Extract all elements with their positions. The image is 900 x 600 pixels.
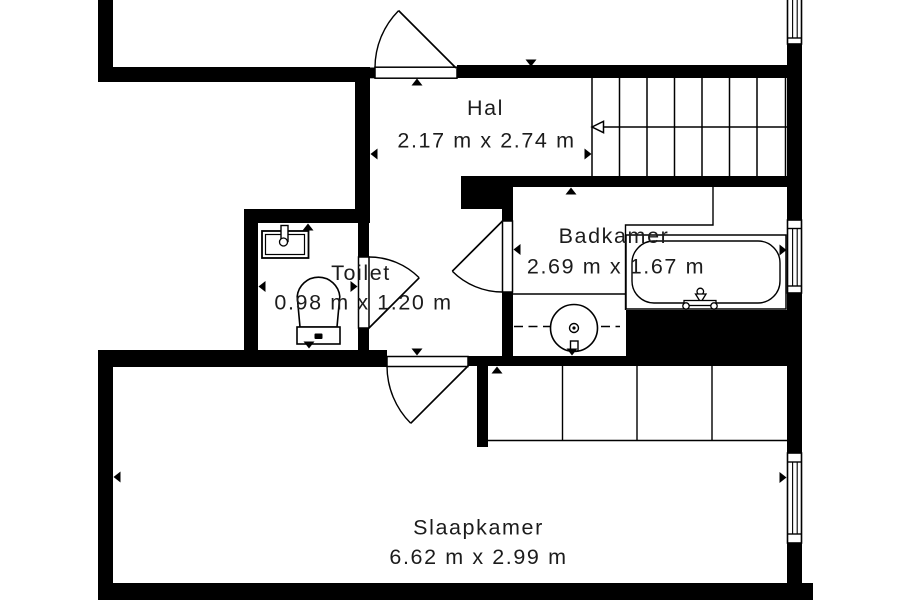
svg-text:2.69 m x 1.67 m: 2.69 m x 1.67 m (527, 255, 705, 279)
svg-text:Toilet: Toilet (331, 261, 391, 285)
svg-text:2.17 m x 2.74 m: 2.17 m x 2.74 m (397, 129, 575, 153)
svg-text:Slaapkamer: Slaapkamer (413, 516, 544, 540)
svg-text:Badkamer: Badkamer (559, 224, 670, 248)
svg-text:Hal: Hal (467, 96, 504, 120)
svg-text:6.62 m x 2.99 m: 6.62 m x 2.99 m (389, 545, 567, 569)
svg-text:0.98 m x 1.20 m: 0.98 m x 1.20 m (274, 291, 452, 315)
